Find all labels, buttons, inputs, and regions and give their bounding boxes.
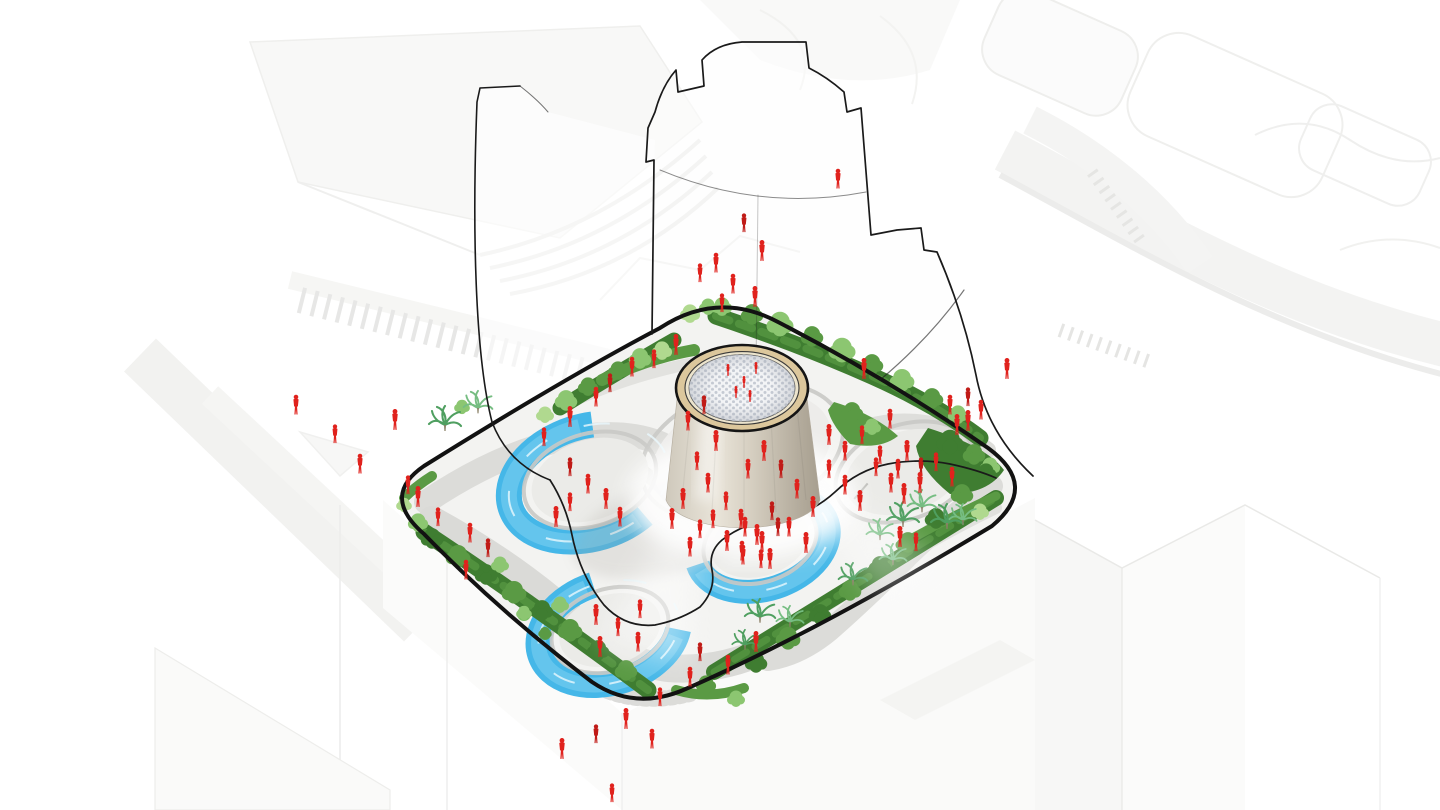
background-right-curve-2 xyxy=(1340,239,1440,250)
background-right-slats-1 xyxy=(1060,330,1150,362)
diagram-canvas xyxy=(0,0,1440,810)
person-figure xyxy=(1004,358,1009,379)
person-figure xyxy=(293,395,298,415)
person-figure xyxy=(333,424,338,443)
background-right-curve-1 xyxy=(1255,124,1440,162)
background-left-deck-shadow-1 xyxy=(140,355,420,625)
site-diagram-svg xyxy=(0,0,1440,810)
background-rounded-block-2 xyxy=(1117,22,1354,208)
podium-box-right-2 xyxy=(1122,505,1245,810)
central-pavilion xyxy=(666,345,820,528)
background-right-swoosh-1 xyxy=(1005,150,1440,345)
background-rounded-block-1 xyxy=(973,0,1147,125)
person-figure xyxy=(392,409,397,430)
background-rounded-block-3 xyxy=(1291,97,1438,214)
podium-box-right-1 xyxy=(1035,520,1122,810)
podium-box-bottom-left xyxy=(155,648,390,810)
person-figure xyxy=(357,454,362,474)
